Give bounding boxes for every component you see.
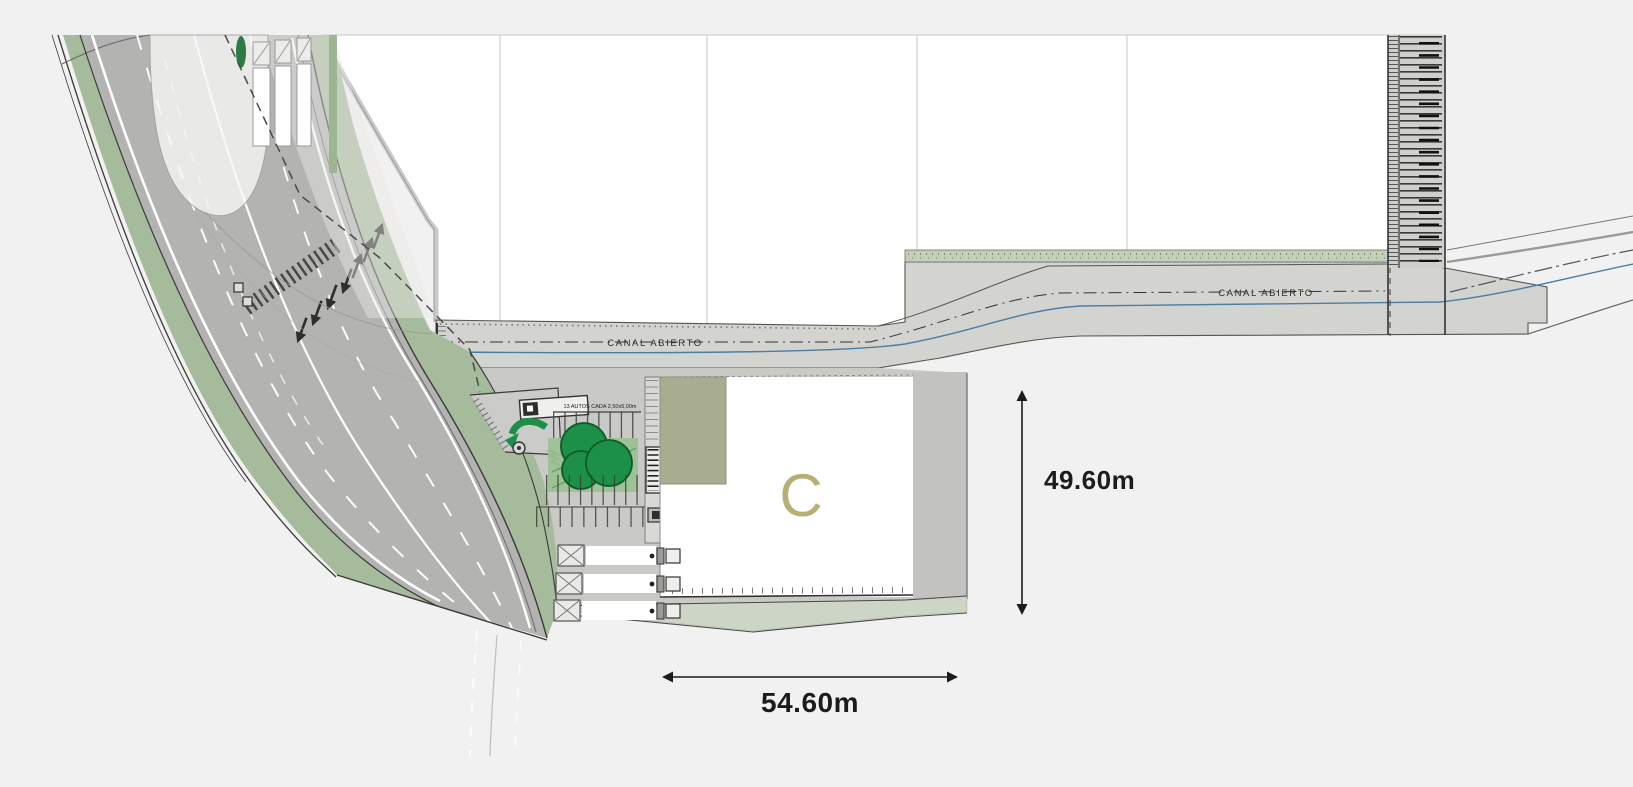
site-plan-canvas: CANAL ABIERTO CANAL ABIERTO — [0, 0, 1633, 787]
ghost-dashed — [515, 640, 521, 756]
ghost-dashed — [470, 630, 477, 756]
canal-label-right: CANAL ABIERTO — [1218, 288, 1314, 299]
site-plan: CANAL ABIERTO CANAL ABIERTO — [0, 0, 1633, 787]
dock-leveler — [666, 549, 680, 563]
dock-dot — [650, 609, 655, 614]
arrow-left-icon — [662, 672, 673, 683]
dimension-label-horizontal: 54.60m — [761, 687, 859, 718]
dock-bumper — [657, 576, 664, 592]
bay-trailer — [582, 601, 656, 620]
offsite-path-line — [1447, 232, 1633, 262]
median-green-strip — [329, 35, 337, 173]
bridge-deck — [297, 64, 311, 146]
building-pad-group: C — [645, 375, 913, 597]
loading-bays — [554, 545, 680, 621]
utility-box-inner — [652, 511, 660, 519]
parking-note: 13 AUTOS CADA 2,50x5,00m — [564, 404, 637, 410]
canal-label-left: CANAL ABIERTO — [607, 338, 703, 349]
dock-dot — [650, 554, 655, 559]
arrow-right-icon — [947, 672, 958, 683]
loading-bay — [556, 573, 680, 594]
arrow-up-icon — [1017, 390, 1028, 401]
pad-annex-block — [660, 377, 726, 484]
dimension-vertical: 49.60m — [1017, 390, 1136, 615]
truck-cab-window — [527, 405, 533, 411]
bay-trailer — [586, 546, 656, 565]
road-marker-box — [234, 283, 243, 292]
dock-leveler — [666, 604, 680, 618]
dimension-horizontal: 54.60m — [662, 672, 958, 719]
dock-leveler — [666, 577, 680, 591]
arrow-down-icon — [1017, 604, 1028, 615]
bridge-deck — [275, 66, 291, 146]
loading-bay — [558, 545, 680, 566]
loading-bay — [554, 600, 680, 621]
dock-dot — [650, 582, 655, 587]
dock-bumper — [657, 548, 664, 564]
gravel-strip — [905, 250, 1388, 262]
roundel-dot — [517, 446, 521, 450]
dock-bumper — [657, 603, 664, 619]
ghost-center — [490, 635, 497, 756]
road-marker-box — [243, 297, 252, 306]
bridge-deck — [253, 68, 270, 146]
building-label: C — [779, 462, 822, 529]
bay-trailer — [584, 574, 656, 593]
pad-east-band — [913, 372, 967, 600]
bridge-decks — [253, 38, 311, 146]
offsite-path-line — [1447, 216, 1633, 250]
ghost-road-lines — [470, 630, 521, 756]
dimension-label-vertical: 49.60m — [1044, 465, 1135, 495]
